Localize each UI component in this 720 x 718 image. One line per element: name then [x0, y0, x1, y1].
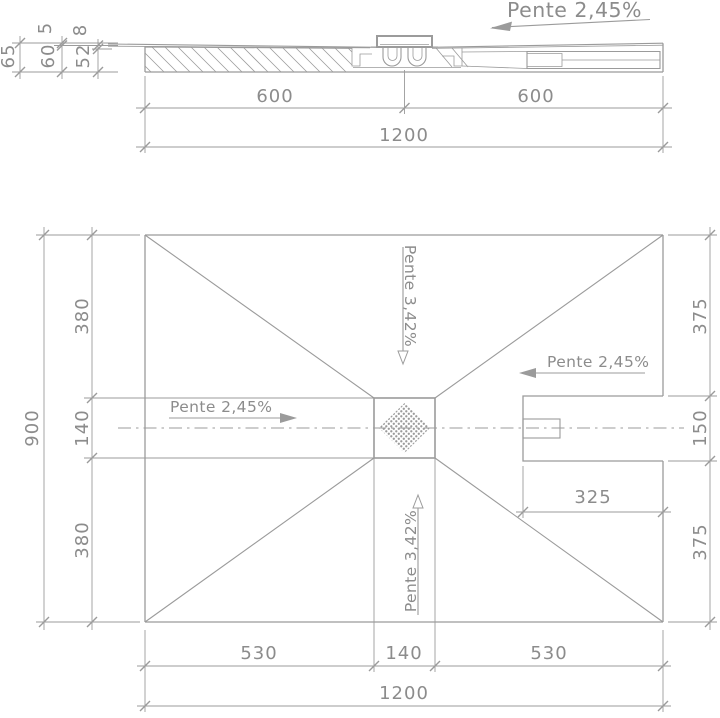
section-left-dimensions: 65 5 60 8 52	[0, 22, 118, 79]
section-view: Pente 2,45% 65 5 60 8 52 600 600 1200	[0, 0, 672, 153]
dim-label-600-right: 600	[517, 86, 554, 107]
dim-label-60: 60	[38, 44, 59, 69]
dim-label-1200-plan: 1200	[379, 683, 429, 704]
section-slope-annotation: Pente 2,45%	[490, 0, 650, 31]
plan-slope-top-label: Pente 3,42%	[401, 245, 419, 347]
plan-slope-right: Pente 2,45%	[519, 353, 649, 378]
dim-label-140-bottom: 140	[385, 643, 422, 664]
dim-label-380-top: 380	[72, 297, 93, 334]
dim-label-375-top: 375	[690, 297, 711, 334]
siphon-tube-left-outer	[383, 48, 401, 66]
plan-view: Pente 2,45% Pente 2,45% Pente 3,42% Pent…	[22, 227, 717, 712]
plan-slope-top: Pente 3,42%	[398, 245, 419, 364]
dim-label-530-left: 530	[240, 643, 277, 664]
section-drain-assembly	[352, 36, 660, 69]
plan-notch-dimension: 325	[516, 466, 671, 518]
dim-label-140-left: 140	[72, 409, 93, 446]
dim-label-150: 150	[690, 409, 711, 446]
technical-drawing-page: Pente 2,45% 65 5 60 8 52 600 600 1200	[0, 0, 720, 718]
dim-label-8: 8	[70, 24, 91, 36]
pipe-transition	[436, 48, 527, 69]
arrow-head-left-icon	[519, 368, 536, 378]
arrow-head-left-icon	[490, 22, 512, 31]
plan-slope-right-label: Pente 2,45%	[547, 353, 649, 371]
dim-label-1200-section: 1200	[379, 125, 429, 146]
plan-slope-bottom: Pente 3,42%	[402, 495, 423, 615]
siphon-tube-left-inner	[388, 48, 397, 61]
dim-label-52: 52	[73, 44, 94, 69]
dim-label-65: 65	[0, 44, 19, 69]
dim-label-380-bottom: 380	[72, 521, 93, 558]
siphon-tube-right-outer	[408, 48, 426, 66]
dim-label-900: 900	[22, 409, 43, 446]
siphon-tube-right-inner	[413, 48, 422, 61]
plan-slope-bottom-label: Pente 3,42%	[402, 510, 420, 612]
arrow-head-right-icon	[280, 413, 297, 423]
plan-outline	[118, 235, 684, 622]
section-hatch	[145, 47, 352, 72]
dim-label-600-left: 600	[256, 86, 293, 107]
trap-body	[352, 48, 462, 68]
dim-label-530-right: 530	[530, 643, 567, 664]
arrow-head-up-icon	[413, 495, 423, 508]
drawing-canvas: Pente 2,45% 65 5 60 8 52 600 600 1200	[0, 0, 720, 718]
plan-slope-left: Pente 2,45%	[169, 398, 297, 423]
plan-right-dimensions: 375 150 375	[668, 227, 717, 630]
dim-label-375-bottom: 375	[690, 523, 711, 560]
section-width-dimensions: 600 600 1200	[136, 70, 672, 153]
plan-slope-left-label: Pente 2,45%	[170, 398, 272, 416]
arrow-head-down-icon	[398, 351, 408, 364]
drain-grate-section	[377, 36, 432, 47]
dim-label-325: 325	[574, 487, 611, 508]
drain-pipe-inner	[527, 54, 660, 67]
drawing: Pente 2,45% 65 5 60 8 52 600 600 1200	[0, 0, 717, 712]
section-slope-label: Pente 2,45%	[507, 0, 642, 22]
dim-label-5: 5	[35, 22, 56, 34]
